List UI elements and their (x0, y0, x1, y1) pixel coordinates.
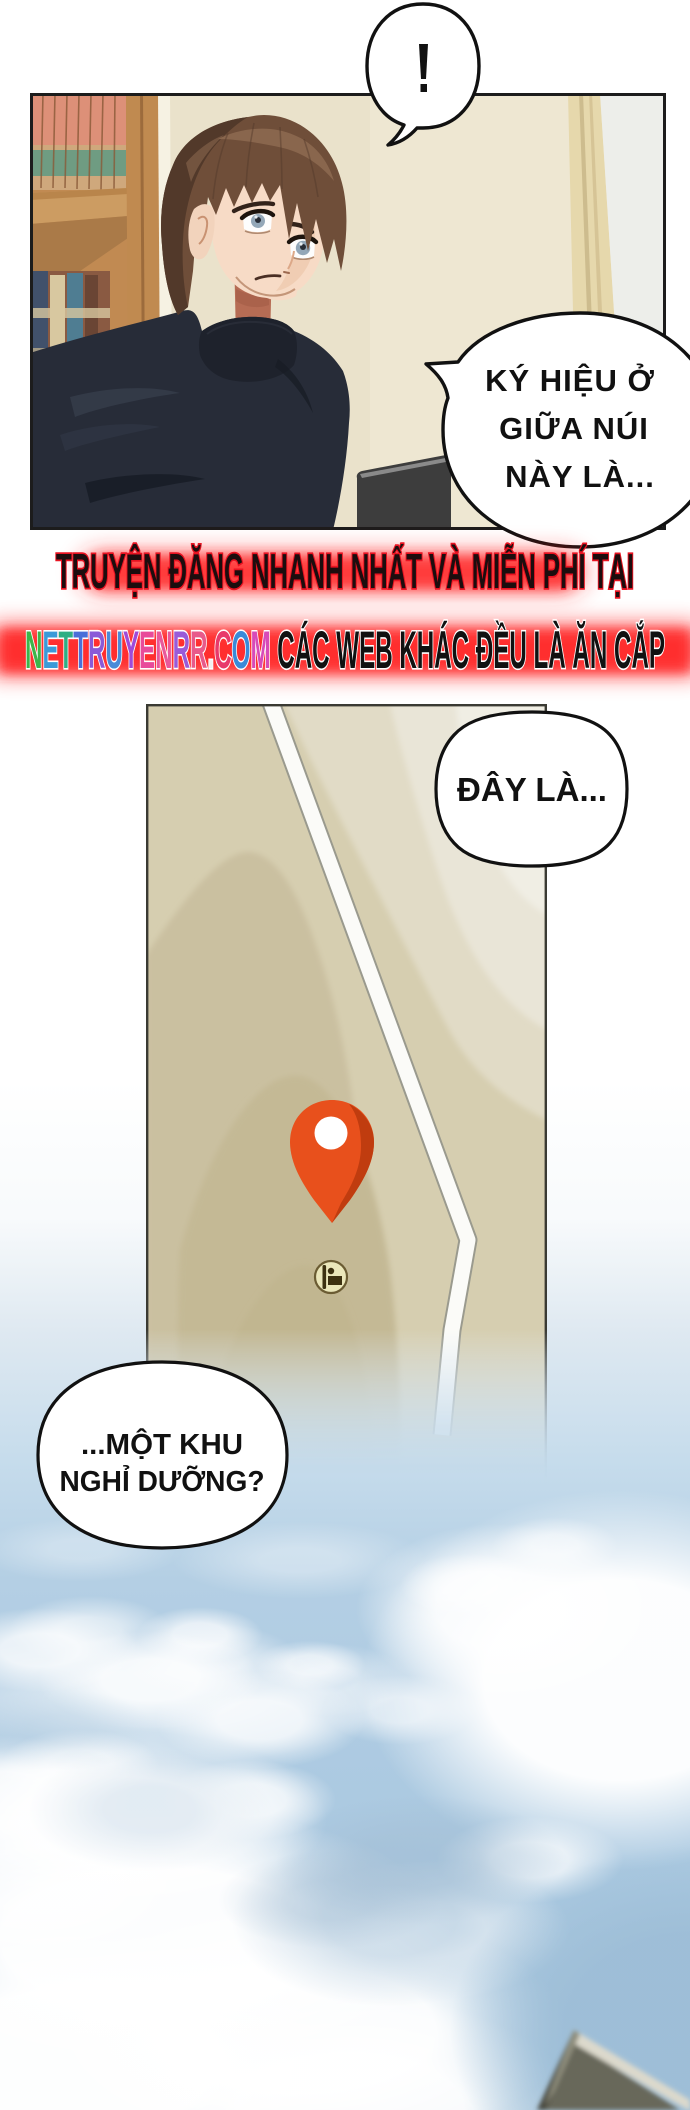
svg-text:NÀY LÀ...: NÀY LÀ... (505, 459, 655, 494)
svg-text:TRUYỆN ĐĂNG NHANH NHẤT VÀ MIỄN: TRUYỆN ĐĂNG NHANH NHẤT VÀ MIỄN PHÍ TẠI (56, 544, 634, 599)
svg-text:ĐÂY LÀ...: ĐÂY LÀ... (457, 771, 607, 808)
svg-text:NGHỈ DƯỠNG?: NGHỈ DƯỠNG? (60, 1464, 265, 1498)
svg-text:NETTRUYENRR.COM CÁC WEB KHÁC Đ: NETTRUYENRR.COM CÁC WEB KHÁC ĐỀU LÀ ĂN C… (25, 619, 665, 680)
svg-text:...MỘT KHU: ...MỘT KHU (81, 1427, 243, 1461)
svg-text:KÝ HIỆU Ở: KÝ HIỆU Ở (485, 362, 655, 398)
svg-text:GIỮA NÚI: GIỮA NÚI (499, 410, 649, 446)
